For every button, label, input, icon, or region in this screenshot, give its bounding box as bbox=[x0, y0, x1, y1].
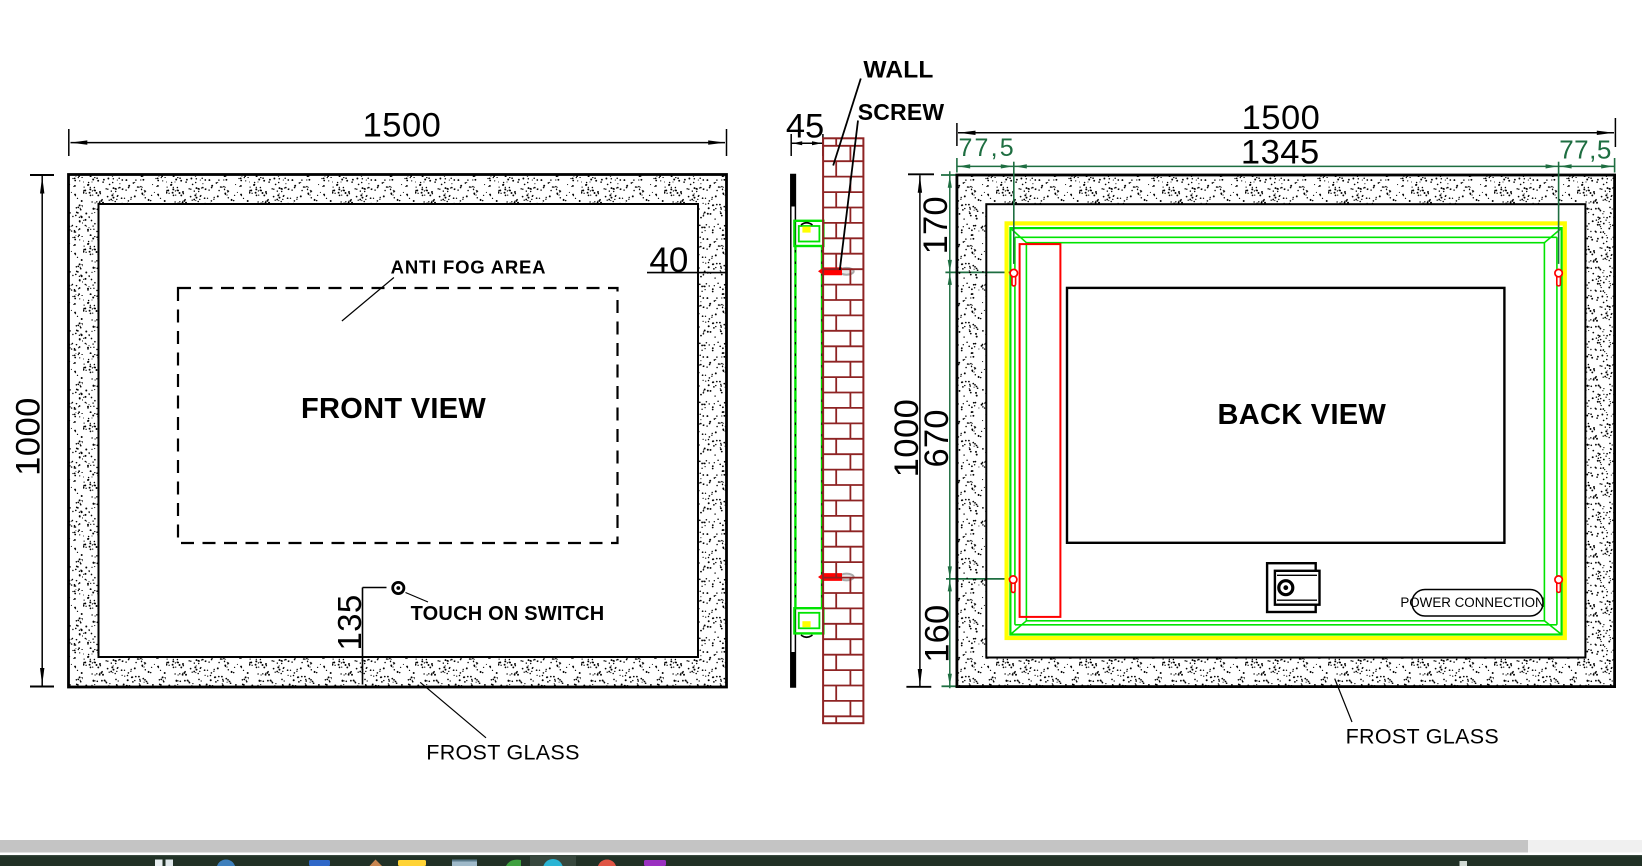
svg-text:40: 40 bbox=[649, 241, 688, 280]
svg-text:1500: 1500 bbox=[363, 106, 442, 144]
svg-text:1500: 1500 bbox=[1242, 99, 1321, 137]
svg-text:1000: 1000 bbox=[10, 397, 48, 476]
svg-text:FROST GLASS: FROST GLASS bbox=[1346, 725, 1499, 749]
svg-text:1345: 1345 bbox=[1241, 134, 1320, 172]
svg-text:TOUCH ON SWITCH: TOUCH ON SWITCH bbox=[411, 603, 605, 625]
svg-text:POWER CONNECTION: POWER CONNECTION bbox=[1400, 595, 1544, 610]
svg-text:FRONT VIEW: FRONT VIEW bbox=[301, 393, 486, 425]
svg-text:670: 670 bbox=[918, 409, 956, 467]
svg-text:170: 170 bbox=[917, 196, 955, 254]
svg-text:SCREW: SCREW bbox=[858, 99, 945, 125]
svg-text:FROST GLASS: FROST GLASS bbox=[426, 741, 579, 765]
svg-text:77,5: 77,5 bbox=[958, 134, 1015, 162]
svg-text:ANTI FOG AREA: ANTI FOG AREA bbox=[391, 257, 547, 278]
svg-text:BACK VIEW: BACK VIEW bbox=[1217, 399, 1386, 431]
svg-text:135: 135 bbox=[331, 595, 368, 651]
svg-text:WALL: WALL bbox=[863, 57, 933, 84]
svg-text:77,5: 77,5 bbox=[1559, 135, 1612, 165]
svg-text:160: 160 bbox=[919, 605, 957, 663]
